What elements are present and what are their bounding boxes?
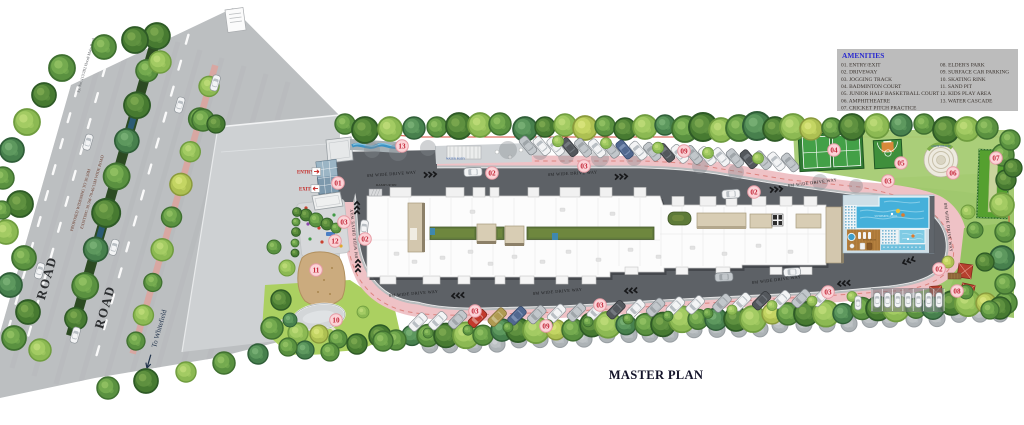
svg-text:02. DRIVEWAY: 02. DRIVEWAY [841,70,877,76]
svg-text:07. CRICKET PITCH PRACTICE: 07. CRICKET PITCH PRACTICE [841,105,917,111]
svg-text:01. ENTRY/EXIT: 01. ENTRY/EXIT [841,63,881,69]
svg-text:03: 03 [824,288,832,296]
svg-text:10. SKATING RINK: 10. SKATING RINK [940,77,986,83]
svg-text:08. ELDER'S PARK: 08. ELDER'S PARK [940,63,985,69]
svg-text:WATER BODY: WATER BODY [446,157,466,161]
svg-text:10: 10 [332,316,340,324]
svg-text:EXIT: EXIT [299,188,312,193]
svg-text:ENTRY: ENTRY [297,171,314,176]
svg-text:03: 03 [471,307,479,315]
svg-text:12. KIDS PLAY AREA: 12. KIDS PLAY AREA [940,91,991,97]
svg-text:03. JOGGING TRACK: 03. JOGGING TRACK [841,77,892,83]
svg-text:07: 07 [992,154,1000,162]
svg-text:AMENITIES: AMENITIES [842,51,884,60]
svg-text:03: 03 [596,301,604,309]
svg-text:SWIMMING POOL: SWIMMING POOL [874,215,897,218]
svg-text:05. JUNIOR HALF BASKETBALL COU: 05. JUNIOR HALF BASKETBALL COURT [841,91,940,97]
svg-text:03: 03 [580,162,588,170]
svg-text:MASTER PLAN: MASTER PLAN [609,368,704,382]
svg-text:02: 02 [361,235,369,243]
svg-text:09: 09 [680,147,688,155]
svg-text:02: 02 [488,169,496,177]
svg-text:13: 13 [398,142,406,150]
svg-text:05: 05 [897,159,905,167]
svg-text:04: 04 [830,146,838,154]
svg-text:11. SAND PIT: 11. SAND PIT [940,84,973,90]
svg-text:12: 12 [331,237,339,245]
svg-text:11: 11 [313,266,320,274]
svg-text:13. WATER CASCADE: 13. WATER CASCADE [940,98,993,104]
svg-text:09: 09 [542,322,550,330]
svg-text:03: 03 [884,177,892,185]
svg-text:09. SURFACE CAR PARKING: 09. SURFACE CAR PARKING [940,70,1009,76]
svg-text:04. BADMINTON COURT: 04. BADMINTON COURT [841,84,902,90]
svg-text:08: 08 [953,287,961,295]
svg-text:06: 06 [949,169,957,177]
svg-text:AMPHITHEATRE: AMPHITHEATRE [931,145,951,148]
svg-text:03: 03 [340,218,348,226]
svg-text:01: 01 [334,179,342,187]
svg-text:02: 02 [750,188,758,196]
svg-text:POOL DECK: POOL DECK [863,239,877,242]
svg-text:06. AMPHITHEATRE: 06. AMPHITHEATRE [841,98,891,104]
svg-text:RAMP UP/DN: RAMP UP/DN [376,183,397,187]
svg-text:02: 02 [935,265,943,273]
